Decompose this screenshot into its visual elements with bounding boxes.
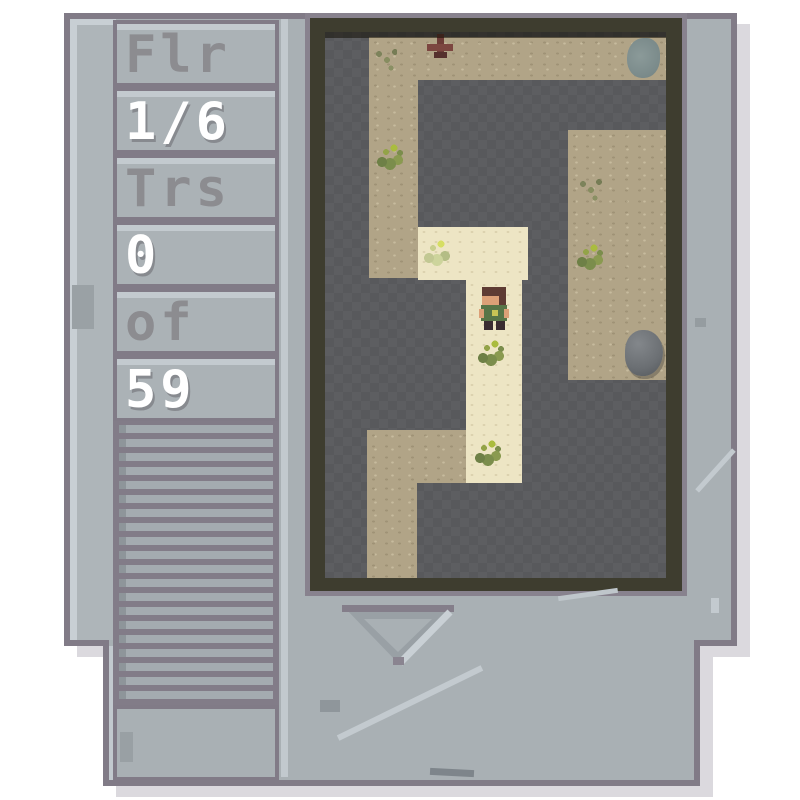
- hud-box-treasure-of: of: [113, 288, 279, 355]
- scratch-mark: [695, 318, 706, 327]
- dead-shrub-sprite: [425, 34, 455, 62]
- hud-text-floor-value: 1/6: [117, 96, 231, 148]
- ridge-bar: [119, 663, 273, 671]
- screenshot-root: Flr 1/6 Trs 0 of 59: [0, 0, 800, 800]
- hud-text-treasure-value: 0: [117, 230, 160, 282]
- cartridge-grip-ridges: [113, 421, 279, 705]
- game-cartridge: Flr 1/6 Trs 0 of 59: [0, 0, 800, 800]
- player-p-leg-l: [484, 321, 493, 330]
- scratch-mark: [120, 732, 133, 762]
- player-p-emblem: [492, 310, 498, 316]
- grass-tuft-1-icon: [373, 136, 407, 170]
- ridge-bar: [119, 509, 273, 517]
- stone-patch-sprite: [627, 38, 660, 78]
- player-p-arm-l: [479, 309, 484, 318]
- player-p-hair: [482, 287, 506, 296]
- hud-box-treasure-value: 0: [113, 221, 279, 288]
- dead-shrub-s-arm: [427, 44, 453, 51]
- player-sprite: [479, 287, 509, 331]
- ridge-bar: [119, 439, 273, 447]
- ridge-bar: [119, 453, 273, 461]
- grass-tuft-4-icon: [471, 432, 511, 472]
- grass-faint-1-icon: [575, 176, 611, 206]
- hud-text-treasure-of: of: [117, 297, 196, 349]
- terrain-sand-bottom-leg: [367, 483, 417, 578]
- scratch-mark: [320, 700, 340, 712]
- player-p-hairside: [499, 296, 506, 305]
- ridge-bar: [119, 467, 273, 475]
- terrain-sand-top-band: [369, 37, 666, 80]
- ridge-bar: [119, 677, 273, 685]
- hud-box-treasure-total: 59: [113, 355, 279, 422]
- grass-tuft-2-icon: [573, 236, 607, 270]
- ridge-bar: [119, 425, 273, 433]
- map-top-shadow: [325, 32, 666, 38]
- game-map[interactable]: [325, 32, 666, 578]
- cartridge-bottom-panel: [113, 705, 279, 781]
- terrain-sand-left-column: [369, 80, 418, 278]
- ridge-bar: [119, 593, 273, 601]
- ridge-bar: [119, 495, 273, 503]
- hud-panel: Flr 1/6 Trs 0 of 59: [113, 20, 279, 422]
- grass-pale-1-icon: [420, 232, 462, 272]
- cartridge-left-groove: [70, 19, 116, 640]
- ridge-bar: [119, 691, 273, 699]
- ridge-bar: [119, 635, 273, 643]
- ridge-bar: [119, 551, 273, 559]
- hud-box-floor-value: 1/6: [113, 87, 279, 154]
- grass-tuft-3-icon: [474, 332, 508, 368]
- scratch-mark: [711, 598, 719, 613]
- player-p-arm-r: [504, 309, 509, 318]
- scratch-mark: [72, 285, 94, 329]
- ridge-bar: [119, 523, 273, 531]
- hud-text-treasure-total: 59: [117, 364, 196, 416]
- cartridge-arrow-icon: [338, 600, 458, 668]
- terrain-sand-bottom-branch: [367, 430, 466, 483]
- dead-shrub-s-base: [434, 52, 447, 58]
- hud-text-treasure-label: Trs: [117, 163, 231, 215]
- hud-text-floor-label: Flr: [117, 29, 231, 81]
- ridge-bar: [119, 579, 273, 587]
- ridge-bar: [119, 607, 273, 615]
- hud-column-highlight: [281, 19, 288, 777]
- ridge-bar: [119, 565, 273, 573]
- ridge-bar: [119, 481, 273, 489]
- ridge-bar: [119, 537, 273, 545]
- grass-faint-2-icon: [371, 46, 397, 72]
- hud-box-floor-label: Flr: [113, 20, 279, 87]
- ridge-bar: [119, 621, 273, 629]
- ridge-bar: [119, 649, 273, 657]
- hud-box-treasure-label: Trs: [113, 154, 279, 221]
- player-p-leg-r: [496, 321, 505, 330]
